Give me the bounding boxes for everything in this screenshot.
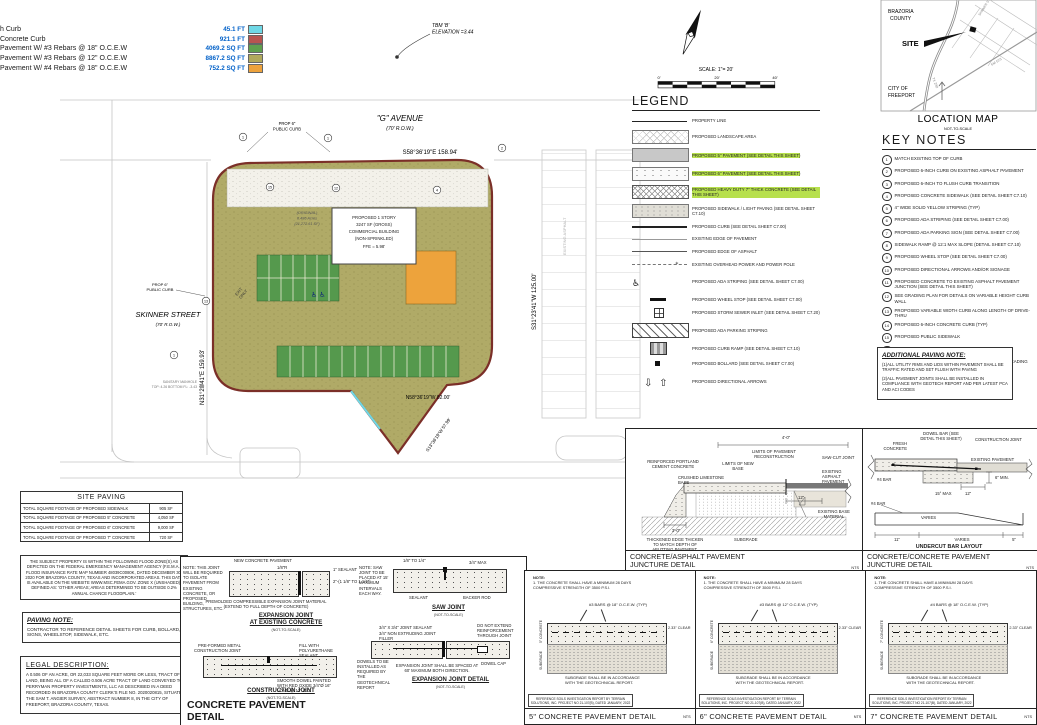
svg-text:(NON-SPRINKLED): (NON-SPRINKLED)	[355, 236, 394, 241]
rebar-leader-2	[601, 609, 606, 622]
paving-plan-sheet: EXISTING ASPHALT PROPOSED 1 STORY 3247 S…	[0, 0, 1037, 725]
quantity-value: 4069.2 SQ FT	[205, 45, 248, 52]
svg-text:12: 12	[334, 186, 338, 190]
legend-item-label: PROPOSED BOLLARD (SEE DETAIL SHEET C7.00…	[692, 361, 794, 366]
joint-sealant-label: 3/4" X 3/4" JOINT SEALANT	[379, 625, 437, 630]
key-note-text: PROPOSED 6-INCH TO FLUSH CURB TRANSITION	[895, 180, 1000, 190]
site-paving-row-label: TOTAL SQUARE FOOTAGE OF PROPOSED 5" CONC…	[21, 514, 150, 523]
soils-reference-note: REFERENCE SOILS INVESTIGATION REPORT BY …	[699, 694, 804, 707]
key-note-text: PROPOSED CONCRETE TO EXISTING ASPHALT PA…	[895, 278, 1037, 290]
site-paving-title: SITE PAVING	[21, 492, 182, 504]
pavement-detail-title-bar: 6" CONCRETE PAVEMENT DETAIL NTS	[696, 708, 866, 724]
legend-swatch-cell	[632, 298, 692, 301]
key-note-text: MATCH EXISTING TOP OF CURB	[895, 155, 963, 165]
saw-joint-nts: (NOT-TO-SCALE)	[396, 613, 501, 617]
key-note-item: 15 PROPOSED PUBLIC SIDEWALK	[882, 333, 1036, 343]
svg-text:15: 15	[268, 185, 272, 189]
legend-item: PROPOSED LANDSCAPE AREA	[632, 130, 820, 144]
quantity-color-swatch	[248, 44, 263, 53]
legend-item: PROPOSED ADA PARKING STRIPING	[632, 323, 820, 338]
scale-bar: 0' 20' 40'	[658, 75, 778, 88]
quantity-row: Concrete Curb 921.1 FT	[0, 35, 263, 45]
legend-item: PROPOSED CURB RAMP (SEE DETAIL SHEET C7.…	[632, 342, 820, 355]
svg-text:COMMERCIAL BUILDING: COMMERCIAL BUILDING	[349, 229, 400, 234]
pavement-detail-title-bar: 7" CONCRETE PAVEMENT DETAIL NTS	[866, 708, 1036, 724]
flood-zone-note: THE SUBJECT PROPERTY IS WITHIN THE FOLLO…	[20, 555, 188, 600]
key-note-item: 7 PROPOSED ADA PARKING SIGN (SEE DETAIL …	[882, 229, 1036, 239]
key-note-number: 11	[882, 278, 892, 288]
key-note-number: 15	[882, 333, 892, 343]
site-paving-row-label: TOTAL SQUARE FOOTAGE OF PROPOSED 6" CONC…	[21, 523, 150, 532]
site-paving-rows: TOTAL SQUARE FOOTAGE OF PROPOSED SIDEWAL…	[21, 504, 182, 541]
saw-joint-slab-graphic	[393, 569, 507, 593]
paving-note-body: CONTRACTOR TO REFERENCE DETAIL SHEETS FO…	[27, 627, 184, 639]
legend-swatch-cell	[632, 373, 692, 391]
pavement-detail-panel: NOTE: 1. THE CONCRETE SHALL HAVE A MINIM…	[695, 570, 867, 725]
curb-leader-lines	[247, 132, 330, 152]
legend-swatch-icon	[632, 204, 689, 218]
saw-dim2: 3/4" MAX	[469, 560, 499, 565]
key-note-item: 12 SEE GRADING PLAN FOR DETAILS ON VARIA…	[882, 292, 1036, 304]
soils-reference-note: REFERENCE SOILS INVESTIGATION REPORT BY …	[528, 694, 633, 707]
svg-text:(21,272.61 SF): (21,272.61 SF)	[294, 222, 320, 226]
expansion-existing-title-1: EXPANSION JOINT	[226, 613, 346, 619]
legend-swatch-cell	[632, 361, 692, 366]
dim-3ft-label: 3'-0"	[664, 528, 688, 533]
key-note-text: SIDEWALK RAMP @ 12:1 MAX SLOPE (DETAIL S…	[895, 241, 1021, 251]
expansion-existing-nts: (NOT-TO-SCALE)	[226, 628, 346, 632]
key-notes-panel: KEY NOTES 1 MATCH EXISTING TOP OF CURB 2…	[882, 133, 1036, 372]
expansion-detail-nts: (NOT-TO-SCALE)	[393, 685, 508, 689]
pavement-detail-nts: NTS	[683, 715, 691, 719]
max15-label: 15° MAX	[935, 491, 955, 496]
skinner-street-label: SKINNER STREET	[135, 310, 201, 319]
sanitary-manhole	[200, 384, 204, 388]
subgrade-note: SUBGRADE SHALL BE IN ACCORDANCE WITH THE…	[906, 676, 986, 686]
preformed-metal-label: PRE-FORMED METAL CONSTRUCTION JOINT	[189, 643, 241, 653]
soils-reference-note: REFERENCE SOILS INVESTIGATION REPORT BY …	[869, 694, 974, 707]
key-note-text: PROPOSED CONCRETE SIDEWALK (SEE DETAIL S…	[895, 192, 1027, 202]
legal-description: LEGAL DESCRIPTION: A 0.506 OF AN ACRE, O…	[20, 656, 198, 714]
quantity-label: h Curb	[0, 26, 21, 33]
additional-paving-note-title: ADDITIONAL PAVING NOTE:	[882, 352, 1008, 359]
site-paving-row-label: TOTAL SQUARE FOOTAGE OF PROPOSED SIDEWAL…	[21, 504, 150, 513]
concrete-pavement-detail-title: CONCRETE PAVEMENT DETAIL	[187, 699, 337, 725]
key-note-item: 9 PROPOSED WHEEL STOP (SEE DETAIL SHEET …	[882, 253, 1036, 263]
legend-swatch-cell	[632, 323, 692, 338]
legend-swatch-icon	[632, 264, 687, 265]
limits-new-base-label: LIMITS OF NEW BASE	[718, 461, 758, 471]
subgrade-graphic	[718, 644, 838, 674]
table-row: TOTAL SQUARE FOOTAGE OF PROPOSED 7" CONC…	[21, 533, 182, 542]
svg-text:1: 1	[327, 136, 329, 140]
fresh-concrete-label: FRESH CONCRETE	[873, 441, 907, 451]
concrete-concrete-juncture-panel: DOWEL BAR (SEE DETAIL THIS SHEET) CONSTR…	[862, 428, 1037, 572]
legend-item: EXISTING EDGE OF PAVEMENT	[632, 235, 820, 243]
legend-item: PROPOSED DIRECTIONAL ARROWS	[632, 373, 820, 391]
new-concrete-pavement-label: NEW CONCRETE PAVEMENT	[233, 558, 293, 563]
key-note-number: 5	[882, 204, 892, 214]
subgrade-depth-label: SUBGRADE	[710, 651, 714, 670]
legal-description-body: A 0.506 OF AN ACRE, OR 22,033 SQUARE FEE…	[26, 672, 192, 708]
key-note-number: 12	[882, 292, 892, 302]
legend-swatch-icon	[632, 167, 689, 181]
saw-cut-joint-label: SAW-CUT JOINT	[822, 455, 856, 460]
key-notes-title: KEY NOTES	[882, 133, 1036, 150]
legend-item-label: PROPOSED CURB (SEE DETAIL SHEET C7.00)	[692, 224, 786, 229]
key-note-number: 4	[882, 192, 892, 202]
saw-dim1: 1/8" TO 1/4"	[403, 558, 439, 563]
legend-item: PROPOSED EDGE OF ASPHALT	[632, 248, 820, 256]
site-paving-table: SITE PAVING TOTAL SQUARE FOOTAGE OF PROP…	[20, 491, 183, 542]
svg-text:0': 0'	[658, 75, 661, 80]
legend-swatch-cell	[632, 148, 692, 162]
rebar-leader-1	[580, 610, 587, 622]
bearing-diagonal-line: S13°36'19"W 57.99'	[425, 417, 452, 453]
svg-text:2: 2	[501, 146, 503, 150]
legend-item-label: PROPOSED ADA PARKING STRIPING	[692, 328, 768, 333]
rebar-callout: #3 BARS @ 12" O.C.E.W. (TYP)	[760, 603, 852, 608]
min6-label: 6" MIN.	[995, 475, 1019, 480]
concrete-depth-label: 7" CONCRETE	[880, 620, 884, 643]
expansion-detail-title: EXPANSION JOINT DETAIL	[393, 677, 508, 683]
svg-text:4: 4	[436, 188, 438, 192]
legend-item: EXISTING OVERHEAD POWER AND POWER POLE	[632, 260, 820, 268]
legend-item-label: PROPERTY LINE	[692, 118, 726, 123]
legend-swatch-icon	[632, 185, 689, 199]
legend-item-label: PROPOSED EDGE OF ASPHALT	[692, 249, 757, 254]
key-note-text: PROPOSED DIRECTIONAL ARROWS AND/OR SIGNA…	[895, 266, 1010, 276]
location-map-title: LOCATION MAP	[918, 114, 999, 125]
legend-swatch-cell	[632, 251, 692, 252]
quantity-row: h Curb 45.1 FT	[0, 25, 263, 35]
map-county-label-2: COUNTY	[890, 16, 912, 22]
legend-swatch-icon	[632, 323, 689, 338]
legend-item-label: PROPOSED STORM SEWER INLET (SEE DETAIL S…	[692, 310, 820, 315]
rebar-line-graphic	[723, 632, 833, 633]
pavement-detail-nts: NTS	[1024, 715, 1032, 719]
key-note-text: PROPOSED 6-INCH CONCRETE CURB (TYP)	[895, 321, 988, 331]
construction-joint-label: CONSTRUCTION JOINT	[975, 437, 1025, 442]
rebar-leader-1	[921, 610, 928, 622]
quantity-value: 921.1 FT	[220, 36, 248, 43]
legend-swatch-cell	[632, 121, 692, 122]
key-note-text: PROPOSED VARIABLE WIDTH CURB ALONG LENGT…	[895, 307, 1037, 319]
dowels-installed-label: DOWELS TO BE INSTALLED AS REQUIRED BY TH…	[357, 659, 393, 690]
legend-item-label: PROPOSED ADA STRIPING (SEE DETAIL SHEET …	[692, 279, 804, 284]
legend-swatch-cell	[632, 204, 692, 218]
sanitary-label-2: TOP: 4.26 BOTTOM FL: -3.43	[152, 385, 197, 389]
bearing-south-line: N58°36'19"W 82.00'	[406, 395, 451, 401]
concrete-depth-label: 6" CONCRETE	[710, 620, 714, 643]
skinner-row-label: (70' R.O.W.)	[156, 322, 181, 327]
reinforced-concrete-label: REINFORCED PORTLAND CEMENT CONCRETE	[644, 459, 702, 469]
g-avenue-label: "G" AVENUE	[377, 114, 424, 123]
legend-item: PROPOSED 6" PAVEMENT (SEE DETAIL THIS SH…	[632, 167, 820, 181]
premolded-label: PREMOLDED COMPRESSIBLE EXPANSION JOINT M…	[201, 599, 331, 609]
quantity-row: Pavement W/ #3 Rebars @ 18" O.C.E.W 4069…	[0, 44, 263, 54]
key-note-text: PROPOSED 6-INCH CURB ON EXISTING ASPHALT…	[895, 167, 1024, 177]
concrete-concrete-juncture-title: CONCRETE/CONCRETE PAVEMENTJUNCTURE DETAI…	[863, 550, 1037, 571]
expansion-dowel-graphic	[393, 648, 477, 649]
concrete-pavement-detail-panel: NOTE: THIS JOINT WILL BE REQUIRED TO ISO…	[180, 556, 527, 725]
location-map-subtitle: NOT-TO-SCALE	[944, 127, 972, 131]
concrete-slab-graphic	[718, 623, 838, 645]
sanitary-label-1: SANITARY MANHOLE	[163, 380, 198, 384]
key-note-item: 6 PROPOSED ADA STRIPING (SEE DETAIL SHEE…	[882, 216, 1036, 226]
b earing-east-line: S31°23'41"W 125.00'	[532, 273, 538, 330]
key-note-item: 3 PROPOSED 6-INCH TO FLUSH CURB TRANSITI…	[882, 180, 1036, 190]
expansion-existing-title-2: AT EXISTING CONCRETE	[226, 620, 346, 626]
legend-swatch-cell	[632, 239, 692, 240]
legend-swatch-cell	[632, 130, 692, 144]
site-paving-row-value: 4,050 SF	[150, 514, 182, 523]
paving-note: PAVING NOTE: CONTRACTOR TO REFERENCE DET…	[22, 612, 189, 643]
key-note-number: 3	[882, 180, 892, 190]
pavement-detail-title: 6" CONCRETE PAVEMENT DETAIL	[700, 712, 827, 721]
legend-swatch-icon	[632, 121, 687, 122]
key-note-number: 13	[882, 307, 892, 317]
key-note-item: 11 PROPOSED CONCRETE TO EXISTING ASPHALT…	[882, 278, 1036, 290]
legend-swatch-cell	[632, 264, 692, 265]
clear-dimension: 2.33" CLEAR	[839, 626, 865, 631]
legend-swatch-icon	[632, 273, 640, 291]
pavement-detail-panel: NOTE: 1. THE CONCRETE SHALL HAVE A MINIM…	[524, 570, 696, 725]
legend-item-label: PROPOSED LANDSCAPE AREA	[692, 134, 756, 139]
legend-panel: LEGEND PROPERTY LINE PROPOSED LANDSCAPE …	[632, 94, 820, 395]
subgrade-depth-label: SUBGRADE	[539, 651, 543, 670]
legend-swatch-icon	[632, 130, 689, 144]
limits-reconstruction-label: LIMITS OF PAVEMENT RECONSTRUCTION	[734, 449, 814, 459]
rebar-leader-2	[942, 609, 947, 622]
legend-item-label: PROPOSED 6" PAVEMENT (SEE DETAIL THIS SH…	[692, 171, 800, 176]
key-note-number: 14	[882, 321, 892, 331]
existing-concrete-graphic	[302, 571, 330, 597]
quantity-row: Pavement W/ #3 Rebars @ 12" O.C.E.W 8867…	[0, 54, 263, 64]
joint-filler-label: 3/4" NON EXTRUDING JOINT FILLER	[379, 631, 437, 641]
svg-text:1: 1	[242, 135, 244, 139]
map-county-label-1: BRAZORIA	[888, 9, 914, 15]
concrete-asphalt-juncture-panel: 4'-0" LIMITS OF PAVEMENT RECONSTRUCTION …	[625, 428, 864, 572]
bearing-west-line: N31°23'41"E 159.93'	[200, 350, 206, 405]
key-note-text: PROPOSED WHEEL STOP (SEE DETAIL SHEET C7…	[895, 253, 1007, 263]
svg-text:40': 40'	[772, 75, 777, 80]
legend-swatch-icon	[654, 308, 664, 318]
key-note-item: 13 PROPOSED VARIABLE WIDTH CURB ALONG LE…	[882, 307, 1036, 319]
subgrade-graphic	[547, 644, 667, 674]
key-note-number: 10	[882, 266, 892, 276]
map-city-label-1: CITY OF	[888, 86, 908, 92]
legend-swatch-cell	[632, 185, 692, 199]
subgrade-depth-label: SUBGRADE	[880, 651, 884, 670]
pavement-detail-panel: NOTE: 1. THE CONCRETE SHALL HAVE A MINIM…	[865, 570, 1037, 725]
concrete-slab-graphic	[888, 623, 1008, 645]
quantity-color-swatch	[248, 64, 263, 73]
subgrade-note: SUBGRADE SHALL BE IN ACCORDANCE WITH THE…	[736, 676, 816, 686]
undercut-11in-label: 11"	[887, 537, 907, 542]
quantity-value: 45.1 FT	[223, 26, 248, 33]
legend-swatch-cell	[632, 167, 692, 181]
tbm-label-1: TBM 'B'	[432, 23, 450, 29]
key-note-number: 2	[882, 167, 892, 177]
svg-text:0.486 Acres: 0.486 Acres	[297, 217, 317, 221]
legend-item: PROPOSED WHEEL STOP (SEE DETAIL SHEET C7…	[632, 296, 820, 304]
undercut-varies-label: VARIES	[921, 515, 945, 520]
construction-joint-title: CONSTRUCTION JOINT	[221, 688, 341, 694]
rebar-line-graphic	[552, 632, 662, 633]
key-note-text: PROPOSED PUBLIC SIDEWALK	[895, 333, 961, 343]
clear-dimension: 2.33" CLEAR	[668, 626, 694, 631]
existing-base-label: EXISTING BASE MATERIAL	[812, 509, 856, 519]
key-note-number: 7	[882, 229, 892, 239]
key-note-item: 14 PROPOSED 6-INCH CONCRETE CURB (TYP)	[882, 321, 1036, 331]
key-note-text: SEE GRADING PLAN FOR DETAILS ON VARIABLE…	[895, 292, 1037, 304]
key-note-number: 1	[882, 155, 892, 165]
legend-swatch-cell	[632, 226, 692, 228]
legend-item-label: PROPOSED CURB RAMP (SEE DETAIL SHEET C7.…	[692, 346, 800, 351]
legend-swatch-icon	[632, 251, 687, 252]
dowel-cap-label: DOWEL CAP	[481, 661, 515, 666]
svg-text:13: 13	[204, 299, 208, 303]
g-avenue-row-label: (70' R.O.W.)	[386, 126, 414, 132]
scale-label: SCALE: 1"= 20'	[699, 67, 734, 73]
table-row: TOTAL SQUARE FOOTAGE OF PROPOSED SIDEWAL…	[21, 504, 182, 514]
key-note-text: PROPOSED ADA PARKING SIGN (SEE DETAIL SH…	[895, 229, 1020, 239]
key-note-item: 10 PROPOSED DIRECTIONAL ARROWS AND/OR SI…	[882, 266, 1036, 276]
svg-text:(ORIGINAL): (ORIGINAL)	[297, 211, 318, 215]
quantity-label: Pavement W/ #4 Rebars @ 18" O.C.E.W	[0, 65, 127, 72]
quantity-label: Concrete Curb	[0, 36, 46, 43]
site-paving-row-value: 9,000 SF	[150, 523, 182, 532]
dim-12in-label: 12"	[798, 495, 814, 500]
undercut-5in-label: 5"	[1007, 537, 1021, 542]
dim12b-label: 12"	[965, 491, 981, 496]
rebar-leader-2	[771, 609, 776, 622]
key-note-text: PROPOSED ADA STRIPING (SEE DETAIL SHEET …	[895, 216, 1009, 226]
quantity-color-swatch	[248, 25, 263, 34]
legend-item: PROPOSED BOLLARD (SEE DETAIL SHEET C7.00…	[632, 360, 820, 368]
key-note-number: 8	[882, 241, 892, 251]
paving-note-title: PAVING NOTE:	[27, 617, 184, 624]
legend-item-label: PROPOSED DIRECTIONAL ARROWS	[692, 379, 767, 384]
key-note-item: 4 PROPOSED CONCRETE SIDEWALK (SEE DETAIL…	[882, 192, 1036, 202]
dim-4ft-label: 4'-0"	[766, 435, 806, 440]
legend-item-label: PROPOSED HEAVY DUTY 7" THICK CONCRETE (S…	[692, 187, 820, 198]
existing-parking-stalls-row1	[542, 150, 586, 418]
quantity-label: Pavement W/ #3 Rebars @ 12" O.C.E.W	[0, 55, 127, 62]
prop-curb-top-label-2: PUBLIC CURB	[273, 127, 301, 132]
construction-joint-notch	[267, 656, 270, 663]
curb-leader-left	[176, 290, 205, 296]
rebar-callout: #4 BARS @ 18" O.C.E.W. (TYP)	[930, 603, 1022, 608]
pavement-detail-nts: NTS	[854, 715, 862, 719]
prop-curb-top-label-1: PROP 6"	[279, 121, 296, 126]
legend-item: PROPOSED 5" PAVEMENT (SEE DETAIL THIS SH…	[632, 148, 820, 162]
legend-swatch-icon	[632, 148, 689, 162]
location-map: SITE BRAZORIA COUNTY CITY OF FREEPORT SK…	[880, 0, 1037, 132]
legend-swatch-icon	[650, 342, 667, 355]
key-note-item: 8 SIDEWALK RAMP @ 12:1 MAX SLOPE (DETAIL…	[882, 241, 1036, 251]
svg-text:20': 20'	[714, 75, 719, 80]
pavement-note-body: 1. THE CONCRETE SHALL HAVE A MINIMUM 28 …	[704, 581, 816, 591]
legend-item-label: EXISTING OVERHEAD POWER AND POWER POLE	[692, 262, 795, 267]
rebar-callout: #3 BARS @ 18" O.C.E.W. (TYP)	[589, 603, 681, 608]
key-note-item: 2 PROPOSED 6-INCH CURB ON EXISTING ASPHA…	[882, 167, 1036, 177]
legend-swatch-icon	[632, 226, 687, 228]
svg-text:PROPOSED 1 STORY: PROPOSED 1 STORY	[352, 215, 396, 220]
new-concrete-slab-graphic	[229, 571, 299, 597]
legend-swatch-cell	[632, 273, 692, 291]
bar4-label: #4 BAR	[877, 477, 901, 482]
saw-joint-note: NOTE: SAW JOINT TO BE PLACED AT 15' MAXI…	[359, 565, 391, 596]
radius-label: 1/8"R	[277, 565, 297, 570]
rebar-line-graphic	[893, 632, 1003, 633]
concrete-slab-graphic	[547, 623, 667, 645]
undercut-varies2-label: VARIES	[949, 537, 975, 542]
additional-paving-note: ADDITIONAL PAVING NOTE: (1)ALL UTILITY R…	[877, 347, 1013, 400]
svg-text:3247 SF (GROSS): 3247 SF (GROSS)	[356, 222, 392, 227]
concrete-depth-label: 5" CONCRETE	[539, 620, 543, 643]
crushed-limestone-label: CRUSHED LIMESTONE BASE	[678, 475, 730, 485]
saw-cut-graphic	[444, 571, 446, 580]
key-note-number: 9	[882, 253, 892, 263]
key-note-item: 1 MATCH EXISTING TOP OF CURB	[882, 155, 1036, 165]
expansion-joint-filler-graphic	[298, 571, 301, 595]
legend-item-label: EXISTING EDGE OF PAVEMENT	[692, 236, 757, 241]
site-paving-row-value: 720 SF	[150, 533, 182, 542]
svg-text:1: 1	[173, 353, 175, 357]
pavement-detail-title: 5" CONCRETE PAVEMENT DETAIL	[529, 712, 656, 721]
additional-paving-note-body-1: (1)ALL UTILITY RIMS AND LIDS WITHIN PAVE…	[882, 362, 1008, 373]
legal-description-title: LEGAL DESCRIPTION:	[26, 662, 192, 669]
quantity-value: 752.2 SQ FT	[209, 65, 248, 72]
rebar-leader-1	[750, 610, 757, 622]
tbm-point	[395, 55, 399, 59]
quantity-color-swatch	[248, 35, 263, 44]
legend-swatch-icon	[632, 239, 687, 240]
dowel-bar-label: DOWEL BAR (SEE DETAIL THIS SHEET)	[919, 431, 963, 441]
pavement-detail-title-bar: 5" CONCRETE PAVEMENT DETAIL NTS	[525, 708, 695, 724]
expansion-slab-left-graphic	[371, 641, 443, 659]
parcel-area-label: (ORIGINAL) 0.486 Acres (21,272.61 SF)	[294, 211, 320, 226]
site-paving-row-value: 905 SF	[150, 504, 182, 513]
legend-item: PROPOSED HEAVY DUTY 7" THICK CONCRETE (S…	[632, 185, 820, 199]
subgrade-graphic	[888, 644, 1008, 674]
map-city-label-2: FREEPORT	[888, 93, 915, 99]
backer-rod-label: BACKER ROD	[463, 595, 499, 600]
dowel-cap-graphic	[477, 646, 488, 653]
table-row: TOTAL SQUARE FOOTAGE OF PROPOSED 6" CONC…	[21, 523, 182, 533]
key-note-text: 4" WIDE SOLID YELLOW STRIPING (TYP)	[895, 204, 980, 214]
legend-item: PROPOSED CURB (SEE DETAIL SHEET C7.00)	[632, 223, 820, 231]
legend-swatch-icon	[650, 298, 666, 301]
legend-item: PROPOSED ADA STRIPING (SEE DETAIL SHEET …	[632, 273, 820, 291]
saw-sealant-label: SEALANT	[409, 595, 439, 600]
additional-paving-note-body-2: (2)ALL PAVEMENT JOINTS SHALL BE INSTALLE…	[882, 376, 1008, 392]
tbm-leader	[398, 34, 430, 56]
prop-curb-left-label-2: PUBLIC CURB	[147, 287, 174, 292]
key-note-item: 5 4" WIDE SOLID YELLOW STRIPING (TYP)	[882, 204, 1036, 214]
legend-item: PROPOSED SIDEWALK / LIGHT PAVING (SEE DE…	[632, 204, 820, 218]
concrete-asphalt-juncture-graphic	[626, 429, 861, 545]
legend-item-label: PROPOSED WHEEL STOP (SEE DETAIL SHEET C7…	[692, 297, 802, 302]
pavement-note-body: 1. THE CONCRETE SHALL HAVE A MINIMUM 28 …	[533, 581, 645, 591]
ada-stall-symbols: ♿ ♿	[311, 291, 326, 299]
pavement-detail-title: 7" CONCRETE PAVEMENT DETAIL	[870, 712, 997, 721]
subgrade-label: SUBGRADE	[734, 537, 774, 542]
subgrade-note: SUBGRADE SHALL BE IN ACCORDANCE WITH THE…	[565, 676, 645, 686]
expansion-spacing-label: EXPANSION JOINT SHALL BE SPACED AT 60' M…	[395, 663, 479, 673]
